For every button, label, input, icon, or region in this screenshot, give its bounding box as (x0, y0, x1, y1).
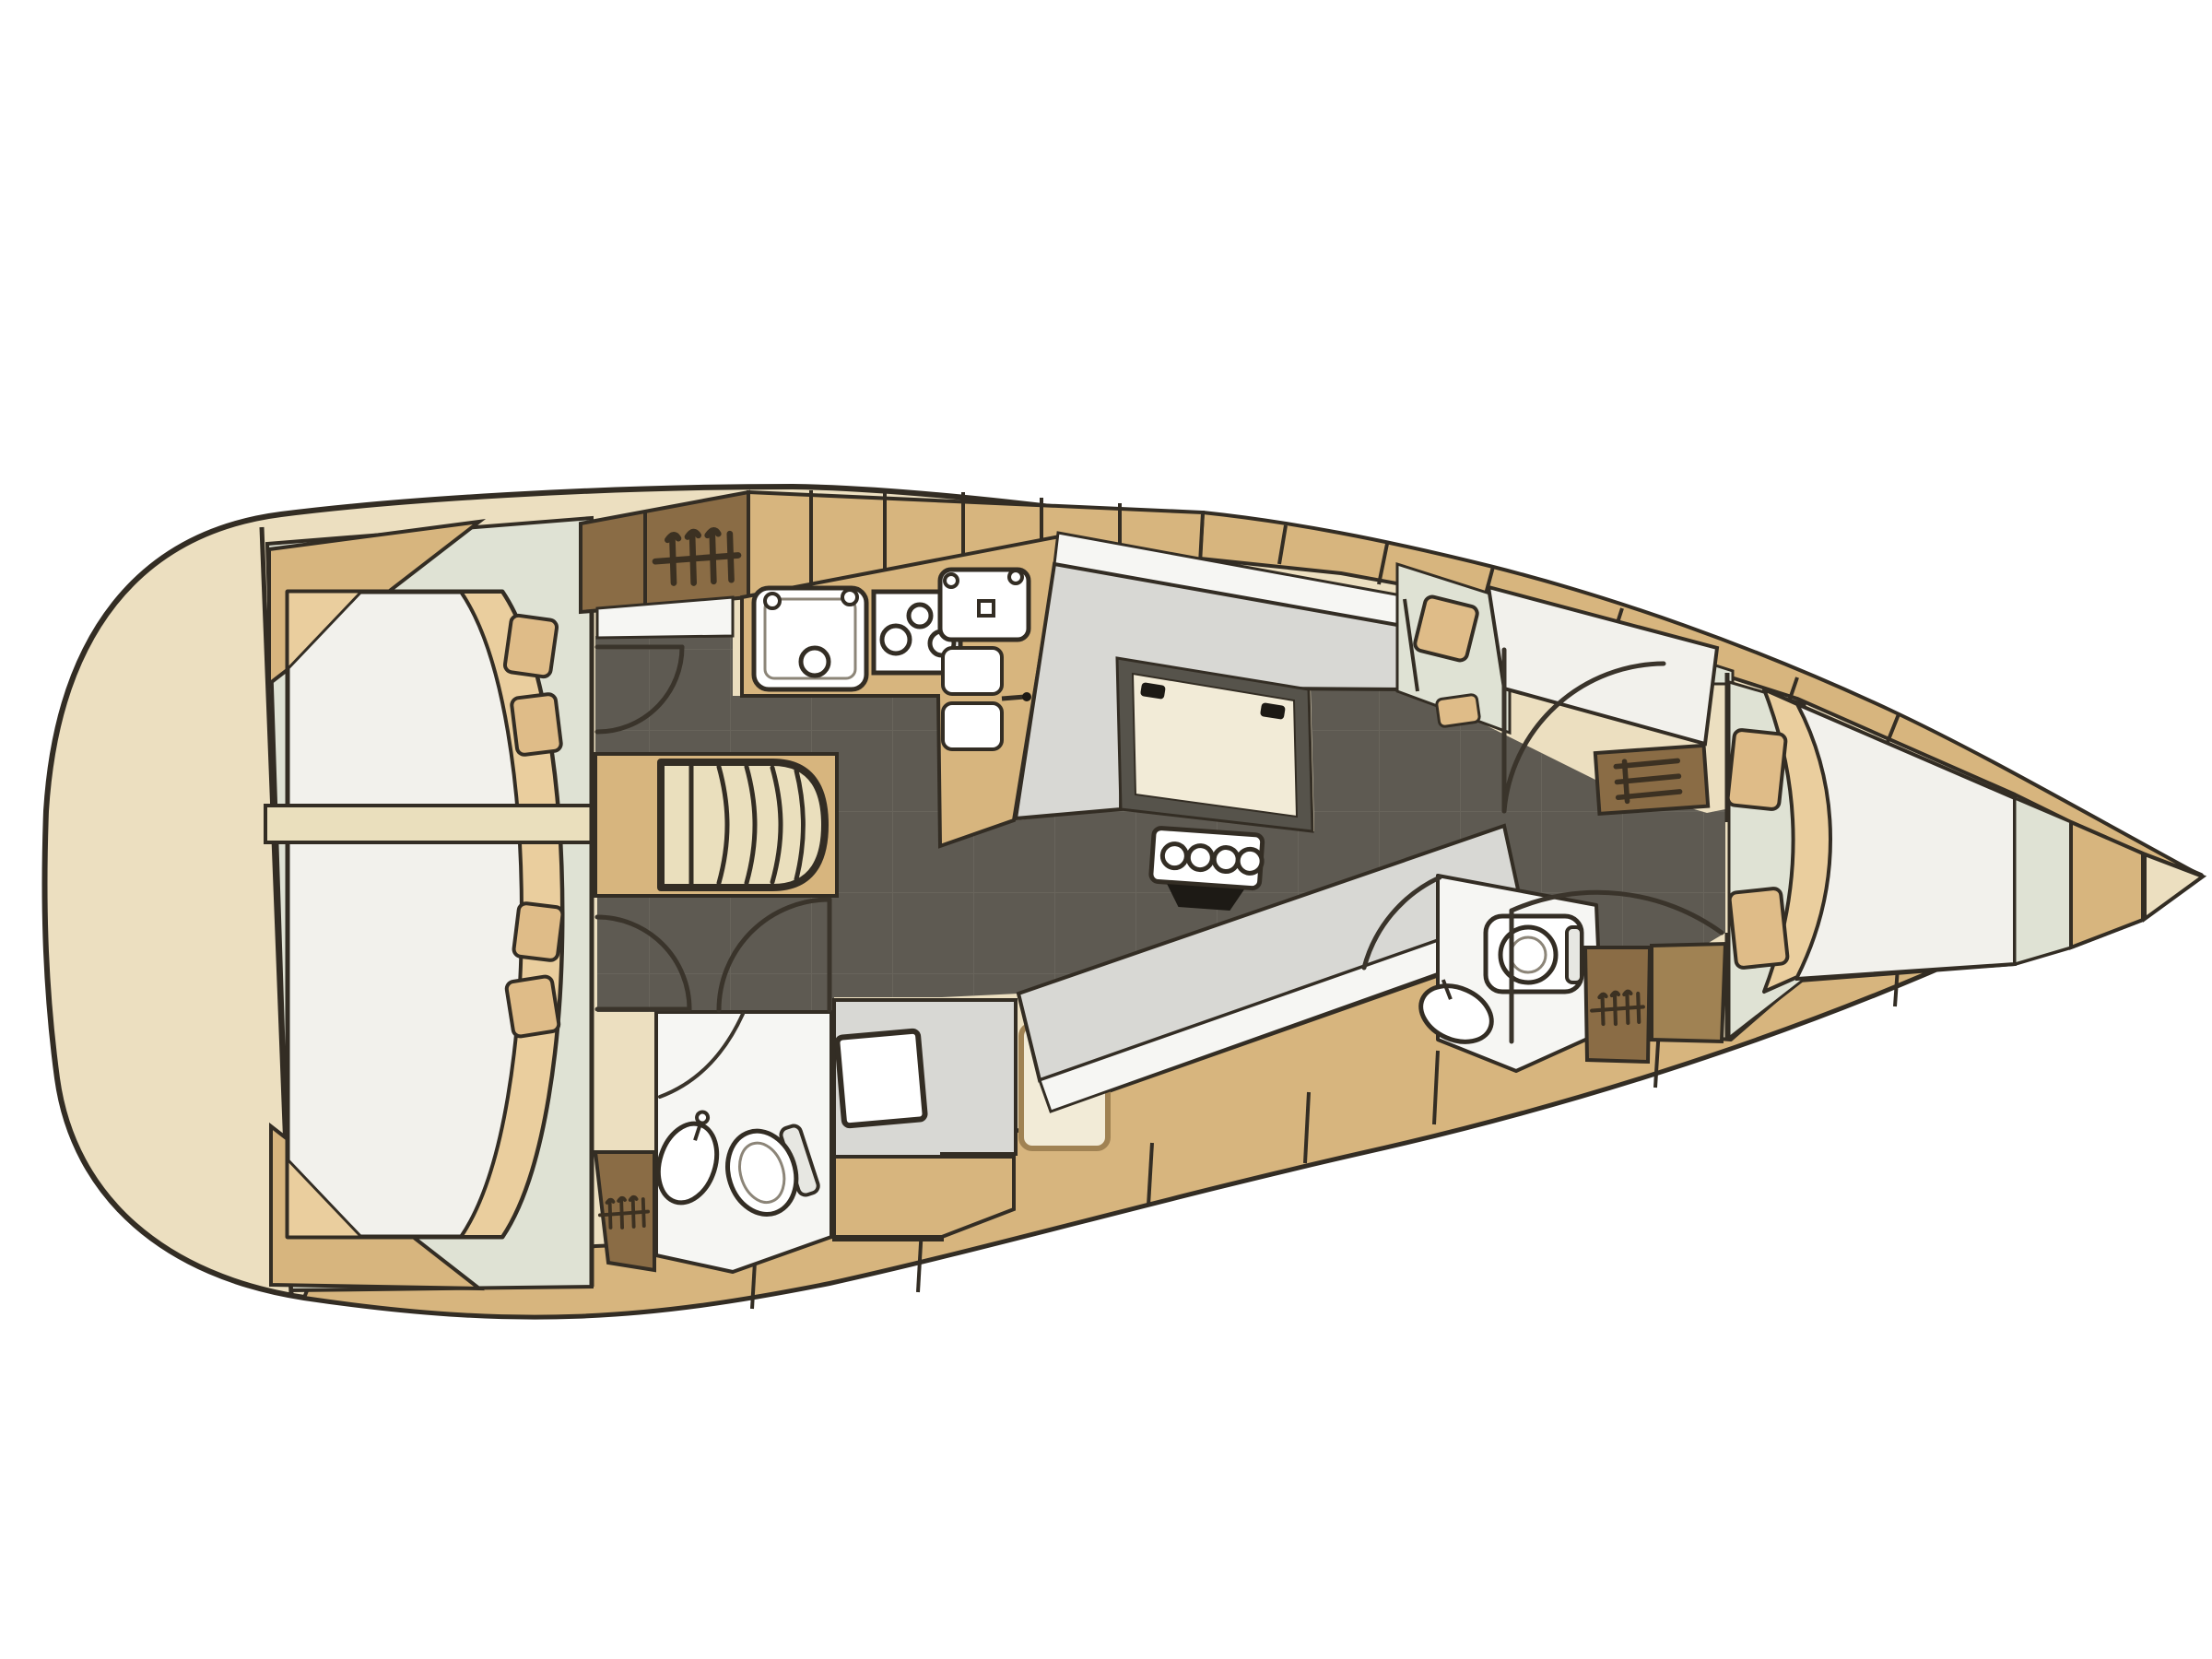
pillow (1727, 729, 1786, 809)
berth-frame (2015, 798, 2071, 964)
fridge-handle (1022, 692, 1031, 701)
fore-head (1412, 876, 1602, 1071)
pillow (1729, 888, 1788, 968)
galley-sink-double (754, 588, 866, 689)
toilet (1500, 927, 1556, 982)
galley-sink (940, 570, 1029, 640)
stove-burner-icon (882, 626, 910, 653)
faucet-icon (696, 1111, 710, 1124)
locker-panel (1652, 944, 1725, 1041)
pillow (511, 693, 561, 755)
floor-plan-svg (0, 0, 2212, 1659)
faucet-icon (842, 590, 857, 605)
pillow (504, 615, 558, 677)
guest-pillow (1436, 694, 1480, 727)
stove-burner-icon (909, 605, 931, 627)
boat-floor-plan (0, 0, 2212, 1659)
drain-icon (801, 648, 829, 676)
shelf-unit (1595, 746, 1708, 814)
faucet-icon (945, 574, 958, 587)
pillow (513, 902, 564, 960)
fore-cabin (1727, 673, 2203, 1040)
toilet-tank (1567, 927, 1582, 982)
aft-head (649, 1012, 831, 1272)
pillow (506, 975, 560, 1037)
faucet-icon (1009, 571, 1022, 583)
companionway (595, 754, 837, 896)
stool-cushion (1414, 595, 1479, 662)
saloon-table (1117, 658, 1312, 831)
faucet-icon (765, 594, 780, 608)
anchor-locker (2145, 854, 2203, 919)
chart-table (837, 1030, 925, 1125)
